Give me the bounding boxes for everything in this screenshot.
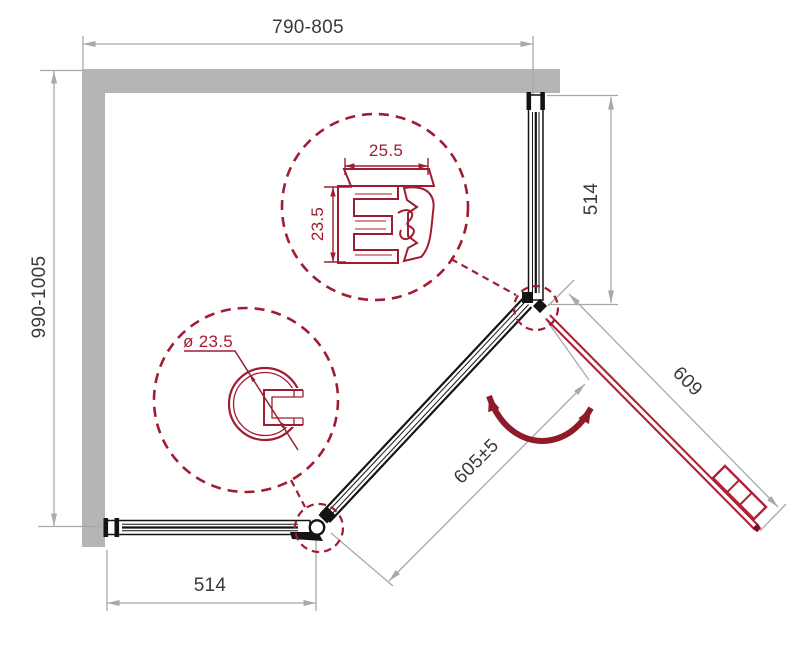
fixed-panel-bottom (104, 518, 311, 537)
dim-label-top-width: 790-805 (272, 17, 344, 39)
fixed-panel-right (527, 92, 545, 300)
pivot-profile-section (229, 368, 305, 440)
detail-leader-top (451, 259, 516, 295)
dim-label-right-panel: 514 (581, 183, 603, 216)
door-swing-arrow-icon (489, 396, 591, 441)
technical-drawing-canvas: 790-805 990-1005 514 514 609 605±5 25.5 … (0, 0, 800, 647)
detail-leader-bottom (291, 480, 305, 507)
dim-label-pivot-diameter: ø 23.5 (183, 332, 233, 352)
drawing-svg (0, 0, 800, 647)
wall-profile-section (338, 169, 434, 263)
walls (82, 69, 560, 547)
dim-label-profile-depth: 23.5 (308, 207, 328, 241)
dim-label-profile-width: 25.5 (369, 141, 403, 161)
wall-top (82, 69, 560, 93)
dim-entry-width (331, 318, 589, 586)
dim-label-bottom-panel: 514 (194, 575, 227, 597)
wall-left (82, 69, 105, 547)
door-closed-panel (321, 299, 532, 522)
dim-label-left-depth: 990-1005 (29, 256, 51, 339)
pivot-pin (310, 520, 324, 534)
wall-clamp-top (527, 92, 532, 110)
wall-clamp-bottom (104, 518, 109, 537)
